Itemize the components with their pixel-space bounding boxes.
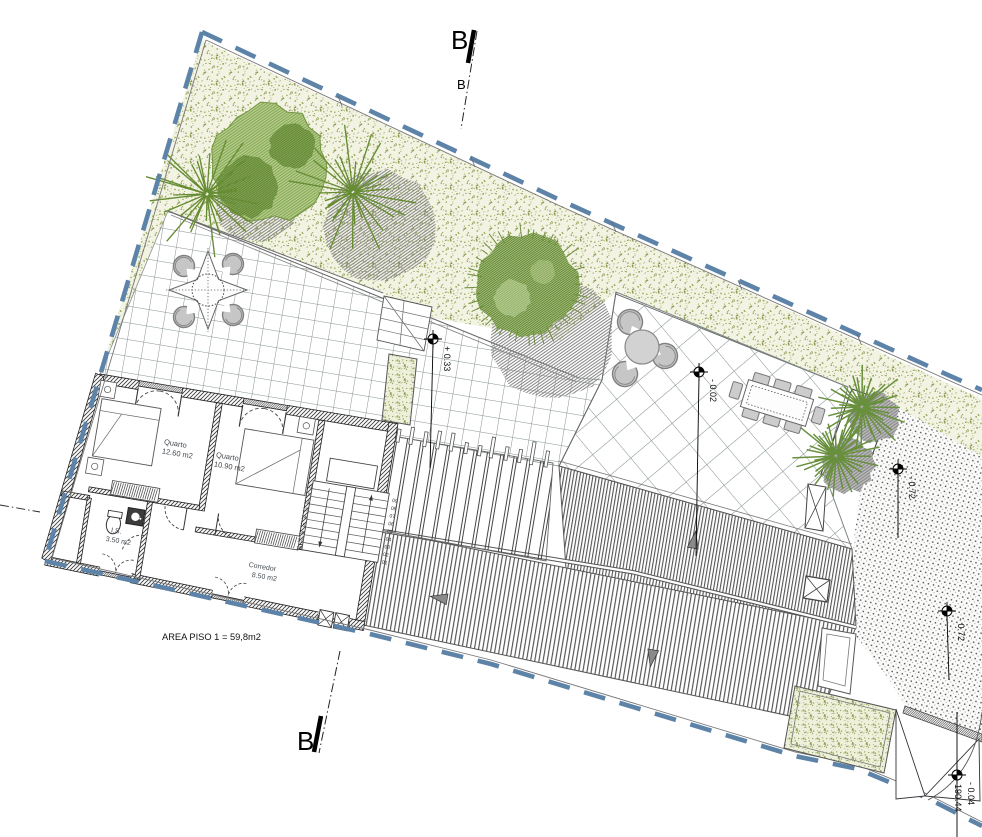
- svg-text:AREA PISO 1 = 59,8m2: AREA PISO 1 = 59,8m2: [162, 632, 261, 642]
- svg-text:- 0.02: - 0.02: [708, 379, 718, 402]
- svg-text:- 0.04: - 0.04: [966, 782, 976, 805]
- svg-text:- 0.72: - 0.72: [907, 476, 917, 499]
- svg-text:B: B: [297, 726, 314, 756]
- svg-text:- 0.72: - 0.72: [956, 618, 966, 641]
- svg-text:190.44: 190.44: [953, 784, 963, 812]
- svg-text:+ 0.33: + 0.33: [442, 346, 452, 371]
- svg-text:B: B: [457, 77, 466, 92]
- svg-text:B: B: [451, 25, 468, 55]
